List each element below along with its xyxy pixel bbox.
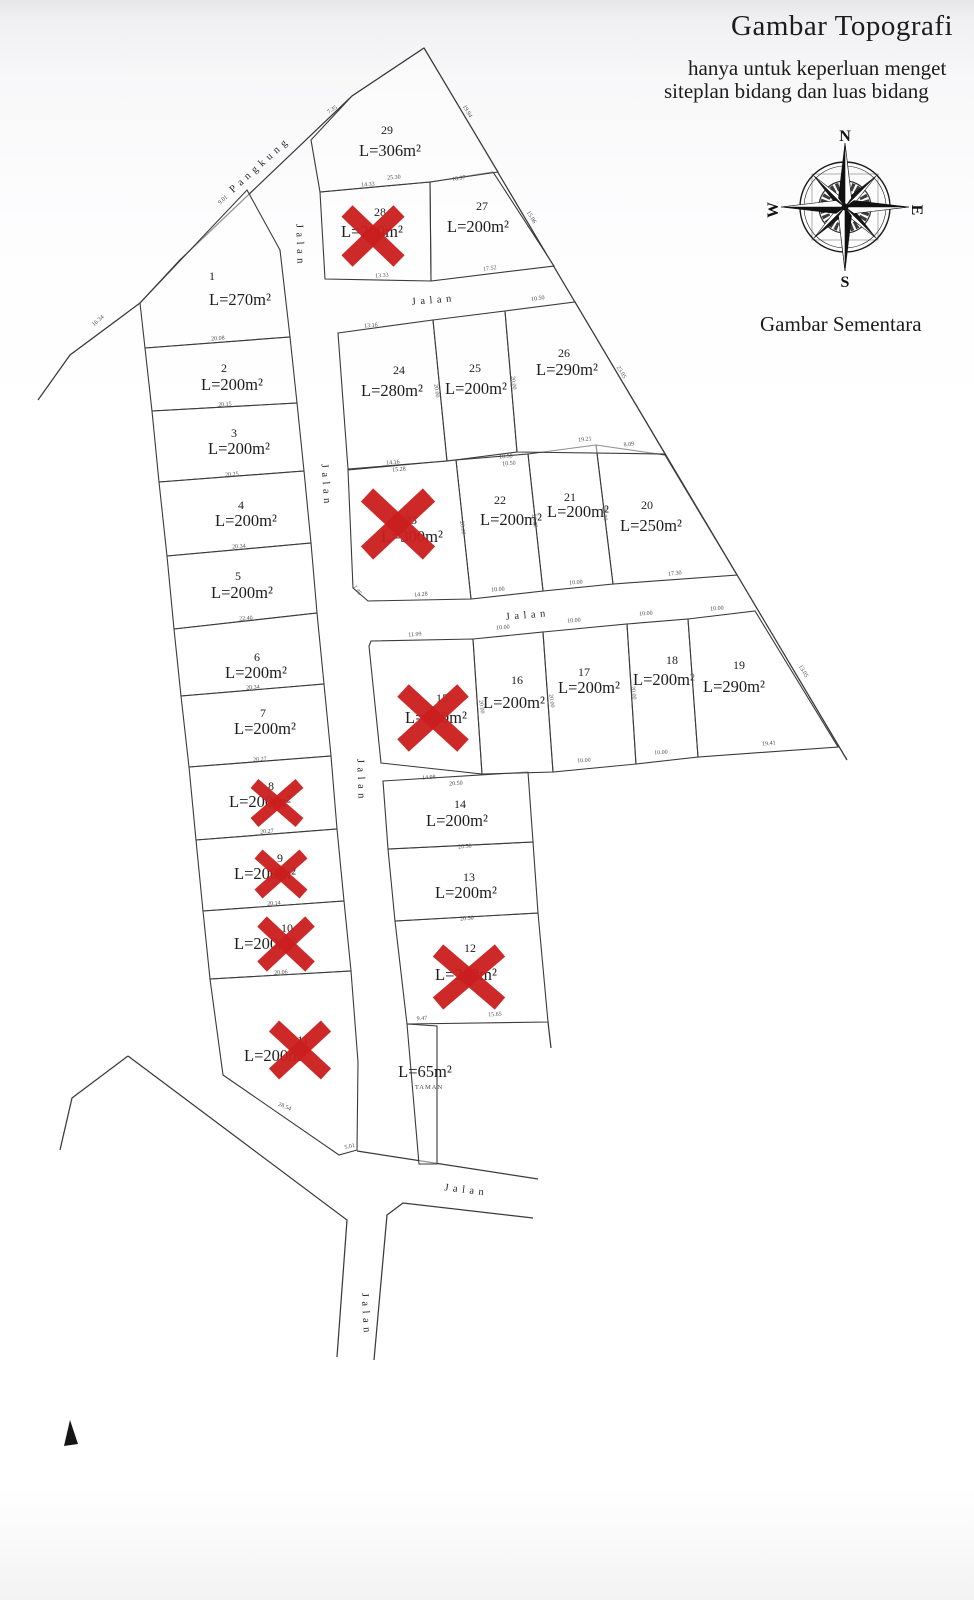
plot-6-area-label: L=200m² [225, 663, 287, 682]
plot-27-area-label: L=200m² [447, 217, 509, 236]
dimension-label: 9.47 [417, 1016, 428, 1023]
dimension-label: 10.50 [531, 295, 545, 303]
plot-taman-area-label: L=65m² [398, 1062, 452, 1081]
plot-25-area-label: L=200m² [445, 379, 507, 398]
plot-20-number: 20 [641, 498, 653, 512]
road-label: Jalan [318, 463, 332, 508]
plot-1-number: 1 [209, 269, 215, 283]
dimension-label: 20.50 [458, 844, 472, 851]
plot-taman-sublabel: TAMAN [415, 1084, 443, 1091]
plot-26-area-label: L=290m² [536, 360, 598, 379]
plot-4-area-label: L=200m² [215, 511, 277, 530]
plot-17-number: 17 [578, 665, 590, 679]
dimension-label: 8.09 [623, 441, 634, 448]
plot-29-polygon [311, 48, 498, 192]
plot-19-number: 19 [733, 658, 745, 672]
plot-18-area-label: L=200m² [633, 670, 695, 689]
dimension-label: 15.06 [525, 210, 537, 225]
plot-3-area-label: L=200m² [208, 439, 270, 458]
plot-19-area-label: L=290m² [703, 677, 765, 696]
dimension-label: 10.00 [496, 625, 510, 632]
dimension-label: 25.30 [387, 175, 401, 182]
dimension-label: 10.00 [639, 611, 653, 618]
dimension-label: 14.28 [414, 592, 428, 599]
dimension-label: 20.27 [260, 829, 274, 836]
plot-14-number: 14 [454, 797, 466, 811]
plot-20-polygon [596, 445, 737, 584]
road-label: Jalan [354, 759, 367, 803]
plot-13-number: 13 [463, 870, 475, 884]
road-edge-left-tail [60, 1056, 128, 1150]
plot-25-number: 25 [469, 361, 481, 375]
plot-20-area-label: L=250m² [620, 516, 682, 535]
dimension-label: 16.34 [91, 315, 105, 328]
dimension-label: 10.00 [710, 606, 724, 613]
dimension-label: 13.33 [375, 273, 389, 280]
dimension-label: 20.27 [253, 757, 267, 764]
dimension-label: 20.06 [274, 970, 288, 977]
dimension-label: 19.41 [762, 740, 776, 747]
plot-1-area-label: L=270m² [209, 290, 271, 309]
dimension-label: 13.05 [797, 664, 809, 679]
road-edge-top [357, 1151, 538, 1179]
road-edge-bottom [374, 1203, 533, 1360]
plot-1-polygon [140, 190, 290, 348]
plot-29-area-label: L=306m² [359, 141, 421, 160]
plot-7-area-label: L=200m² [234, 719, 296, 738]
plot-9-number: 9 [277, 851, 283, 865]
dimension-label: 14.33 [361, 182, 375, 189]
plot-21-area-label: L=200m² [547, 502, 609, 521]
dimension-label: 14.98 [422, 775, 436, 782]
siteplan-page: { "header": { "title": "Gambar Topografi… [0, 0, 974, 1600]
dimension-label: 20.50 [449, 781, 463, 788]
dimension-label: 10.00 [569, 580, 583, 587]
plot-13-area-label: L=200m² [435, 883, 497, 902]
dimension-label: 14.16 [386, 460, 400, 467]
dimension-label: 13.16 [364, 323, 378, 330]
dimension-label: 20.25 [225, 472, 239, 479]
dimension-label: 15.65 [488, 1012, 502, 1019]
road-label: Jalan [359, 1293, 372, 1338]
plot-17-area-label: L=200m² [558, 678, 620, 697]
plot-5-number: 5 [235, 569, 241, 583]
dimension-label: 9.01 [217, 194, 229, 206]
dimension-label: 20.50 [460, 916, 474, 923]
plot-5-area-label: L=200m² [211, 583, 273, 602]
plot-22-number: 22 [494, 493, 506, 507]
plot-26-number: 26 [558, 346, 570, 360]
plot-14-area-label: L=200m² [426, 811, 488, 830]
plot-3-number: 3 [231, 426, 237, 440]
road-label: Jalan [505, 608, 550, 623]
siteplan-map: 1L=270m²2L=200m²3L=200m²4L=200m²5L=200m²… [0, 0, 974, 1600]
dimension-label: 20.34 [232, 544, 246, 551]
plot-24-number: 24 [393, 363, 405, 377]
road-label: Jalan [411, 293, 456, 308]
plot-24-area-label: L=280m² [361, 381, 423, 400]
dimension-label: 10.50 [502, 461, 516, 468]
plot-4-number: 4 [238, 498, 244, 512]
dimension-label: 20.15 [218, 402, 232, 409]
plot-27-number: 27 [476, 199, 488, 213]
plot-7-number: 7 [260, 706, 266, 720]
dimension-label: 15.28 [392, 467, 406, 474]
dimension-label: 10.50 [499, 454, 513, 461]
dimension-label: 11.99 [408, 632, 422, 639]
dimension-label: 10.00 [567, 618, 581, 625]
dimension-label: 22.40 [239, 616, 253, 623]
dimension-label: 20.14 [267, 901, 281, 908]
road-label: Pangkung [228, 135, 293, 195]
corner-wedge [64, 1420, 78, 1446]
plot-2-number: 2 [221, 361, 227, 375]
plot-29-number: 29 [381, 123, 393, 137]
plot-16-number: 16 [511, 673, 523, 687]
dimension-label: 20.34 [246, 685, 260, 692]
plot-18-polygon [627, 619, 698, 764]
dimension-label: 10.00 [491, 587, 505, 594]
plot-17-polygon [543, 624, 636, 772]
dimension-label: 20.08 [211, 336, 225, 343]
boundary-tick [548, 1022, 551, 1048]
plot-18-number: 18 [666, 653, 678, 667]
road-label: Jalan [293, 224, 306, 268]
road-label: Jalan [444, 1182, 489, 1198]
plot-16-area-label: L=200m² [483, 693, 545, 712]
plot-2-area-label: L=200m² [201, 375, 263, 394]
plot-12-number: 12 [464, 941, 476, 955]
plot-taman-polygon [407, 1024, 437, 1164]
dimension-label: 10.00 [654, 750, 668, 757]
plot-6-number: 6 [254, 650, 260, 664]
dimension-label: 10.00 [577, 758, 591, 765]
